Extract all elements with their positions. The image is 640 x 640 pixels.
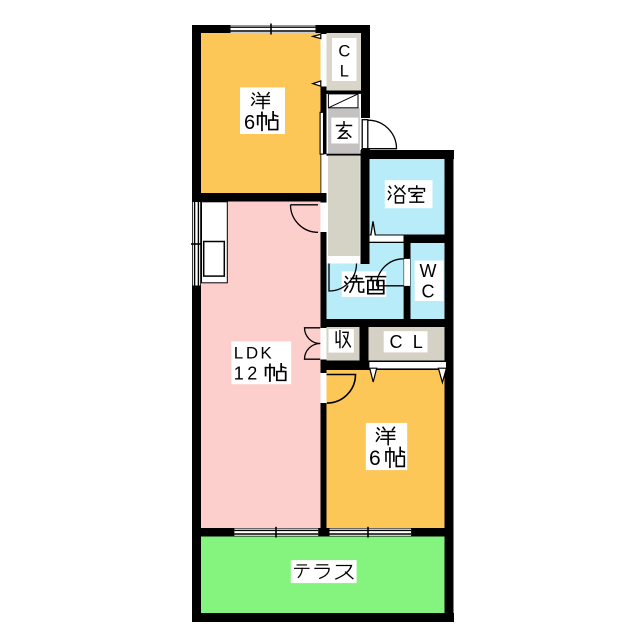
svg-text:6: 6: [369, 447, 381, 470]
svg-text:K: K: [260, 343, 272, 362]
svg-text:W: W: [420, 261, 437, 281]
svg-text:C: C: [422, 282, 435, 302]
svg-text:D: D: [246, 343, 258, 362]
svg-text:C: C: [338, 42, 350, 60]
svg-text:C: C: [390, 332, 403, 352]
svg-text:L: L: [234, 343, 243, 362]
svg-text:1: 1: [234, 364, 244, 384]
svg-text:L: L: [340, 62, 349, 80]
svg-text:L: L: [413, 332, 423, 352]
svg-text:2: 2: [247, 364, 257, 384]
svg-text:6: 6: [244, 112, 255, 134]
